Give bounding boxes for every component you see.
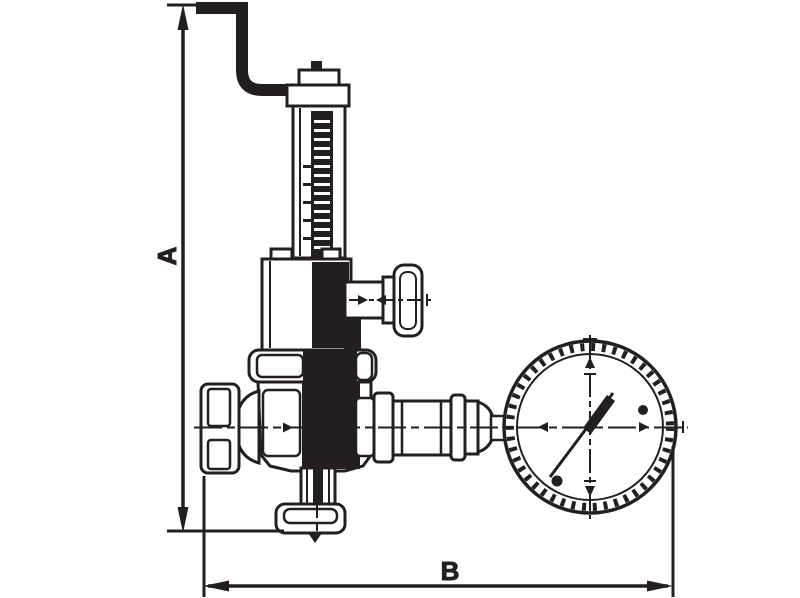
lever-handle-icon [196, 8, 303, 90]
arrow-up-icon [178, 4, 189, 30]
thread-marks [314, 120, 330, 249]
spindle-cap [287, 61, 349, 106]
bottom-flange [276, 504, 345, 543]
spring-housing [262, 249, 351, 350]
spindle-tube [293, 106, 345, 258]
gauge-limit-pin [638, 405, 648, 415]
arrow-down-icon [178, 507, 189, 533]
dimension-b-label: B [441, 556, 460, 586]
valve-dimensional-drawing: A B [0, 0, 800, 598]
technical-drawing-page: A B [0, 0, 800, 598]
arrow-left-icon [203, 581, 229, 592]
arrow-right-icon [647, 581, 673, 592]
dimension-a-label: A [152, 246, 182, 265]
valve-assembly [196, 8, 676, 543]
top-flange [249, 350, 376, 382]
